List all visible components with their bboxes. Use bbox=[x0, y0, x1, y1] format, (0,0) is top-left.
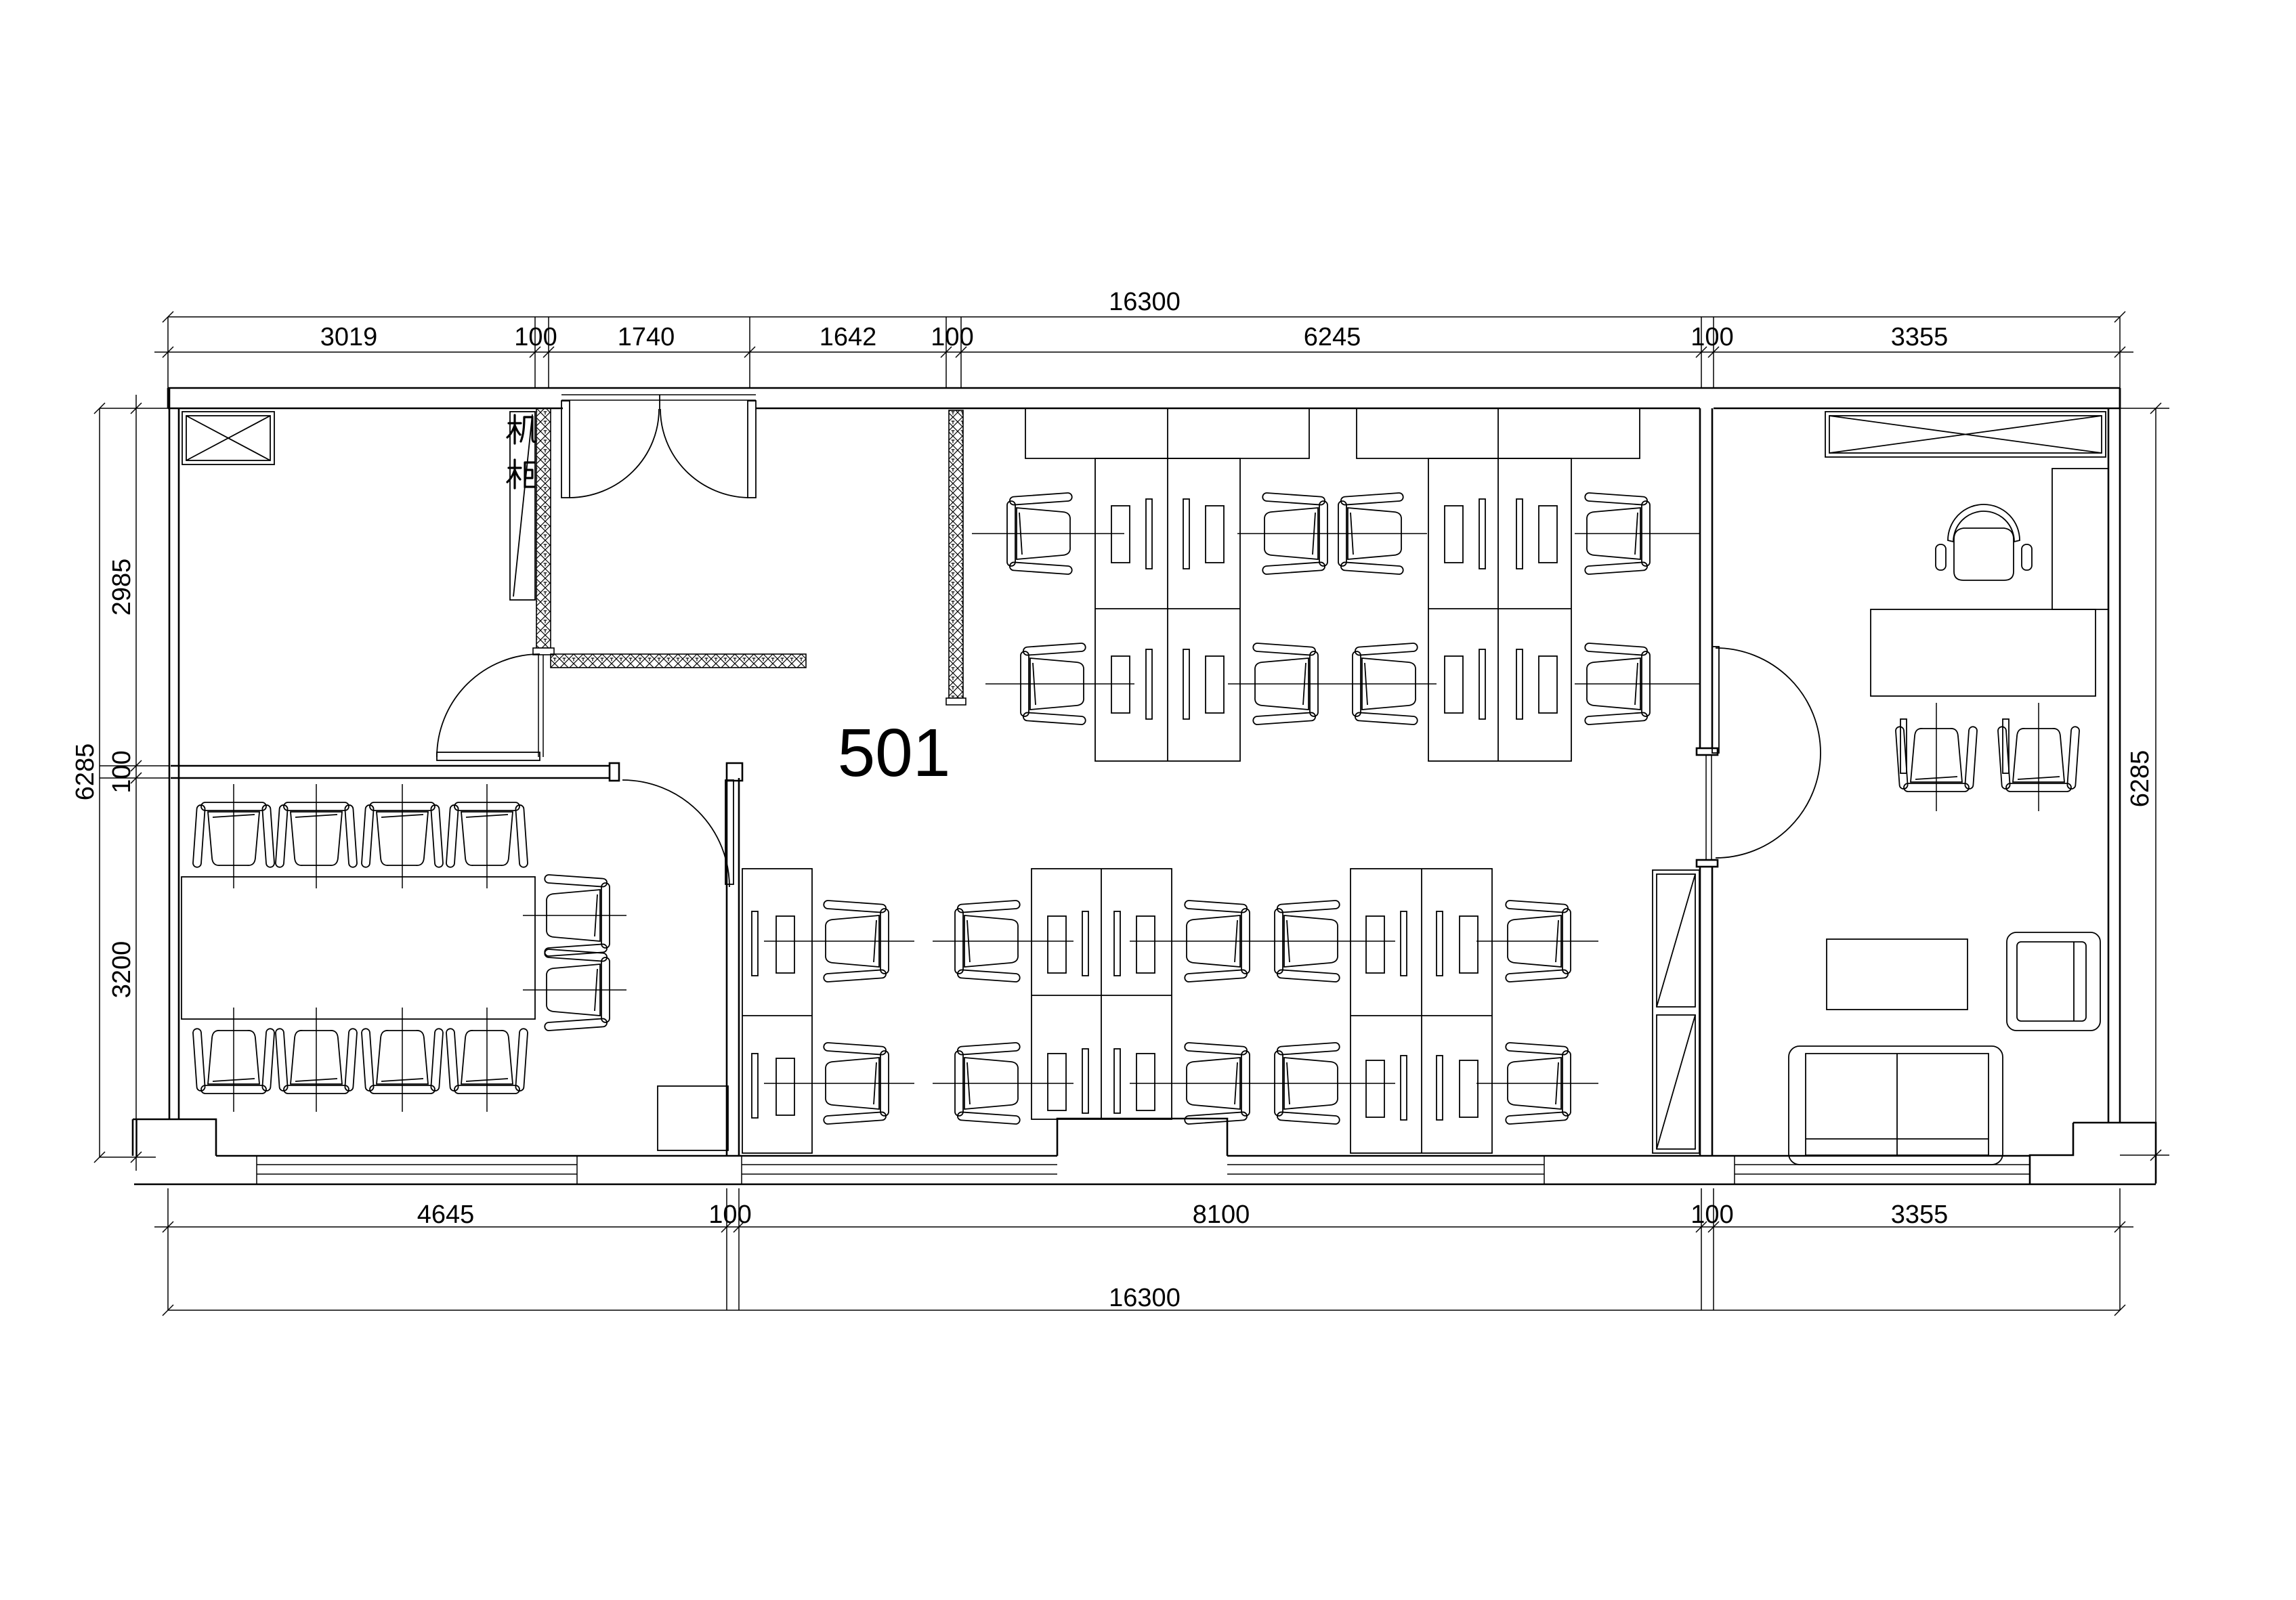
svg-text:2985: 2985 bbox=[108, 559, 136, 616]
svg-text:6245: 6245 bbox=[1304, 323, 1361, 351]
svg-text:1642: 1642 bbox=[820, 323, 877, 351]
svg-text:100: 100 bbox=[108, 750, 136, 793]
svg-text:6285: 6285 bbox=[2126, 750, 2154, 808]
svg-text:100: 100 bbox=[1691, 323, 1733, 351]
svg-text:6285: 6285 bbox=[71, 743, 100, 801]
svg-text:501: 501 bbox=[838, 715, 951, 791]
svg-text:8100: 8100 bbox=[1193, 1201, 1250, 1229]
svg-text:3019: 3019 bbox=[320, 323, 378, 351]
svg-text:3355: 3355 bbox=[1891, 323, 1949, 351]
svg-text:1740: 1740 bbox=[618, 323, 675, 351]
svg-text:100: 100 bbox=[708, 1201, 751, 1229]
svg-text:100: 100 bbox=[931, 323, 973, 351]
svg-text:3355: 3355 bbox=[1891, 1201, 1949, 1229]
svg-text:4645: 4645 bbox=[417, 1201, 475, 1229]
svg-text:16300: 16300 bbox=[1109, 1284, 1181, 1312]
svg-text:3200: 3200 bbox=[108, 941, 136, 999]
svg-text:100: 100 bbox=[514, 323, 557, 351]
svg-text:100: 100 bbox=[1691, 1201, 1733, 1229]
svg-text:16300: 16300 bbox=[1109, 288, 1181, 316]
